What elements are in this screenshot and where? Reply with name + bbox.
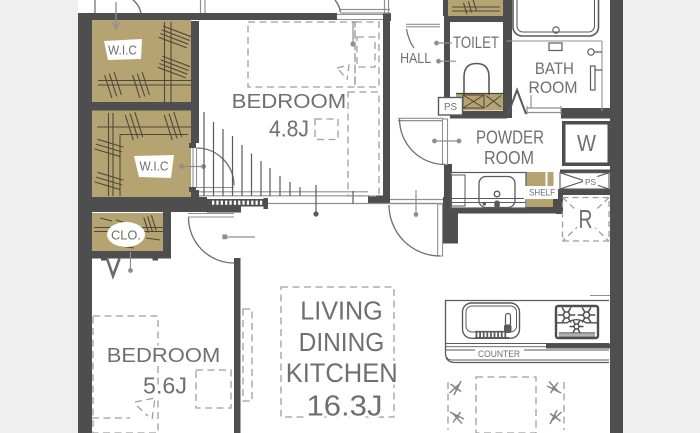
svg-text:PS: PS: [444, 102, 457, 113]
svg-text:R: R: [579, 204, 593, 234]
svg-text:SHELF: SHELF: [529, 188, 555, 199]
svg-text:ROOM: ROOM: [484, 147, 534, 168]
svg-text:W: W: [577, 130, 596, 156]
svg-text:BEDROOM: BEDROOM: [107, 344, 221, 367]
svg-text:4.8J: 4.8J: [269, 116, 309, 142]
svg-text:PS: PS: [585, 177, 596, 187]
svg-text:W.I.C: W.I.C: [108, 44, 137, 58]
svg-text:BATH: BATH: [535, 60, 574, 78]
svg-text:ROOM: ROOM: [529, 79, 578, 97]
svg-text:KITCHEN: KITCHEN: [286, 358, 398, 388]
svg-text:HALL: HALL: [400, 51, 431, 67]
svg-text:CLO.: CLO.: [111, 229, 141, 243]
svg-text:COUNTER: COUNTER: [478, 349, 520, 360]
svg-text:BEDROOM: BEDROOM: [232, 90, 347, 113]
svg-text:16.3J: 16.3J: [307, 391, 383, 423]
svg-text:DINING: DINING: [299, 327, 385, 357]
svg-text:W.I.C: W.I.C: [140, 160, 169, 174]
svg-text:5.6J: 5.6J: [143, 373, 187, 399]
svg-text:TOILET: TOILET: [453, 34, 499, 52]
svg-text:POWDER: POWDER: [476, 126, 544, 147]
svg-text:LIVING: LIVING: [300, 296, 383, 326]
